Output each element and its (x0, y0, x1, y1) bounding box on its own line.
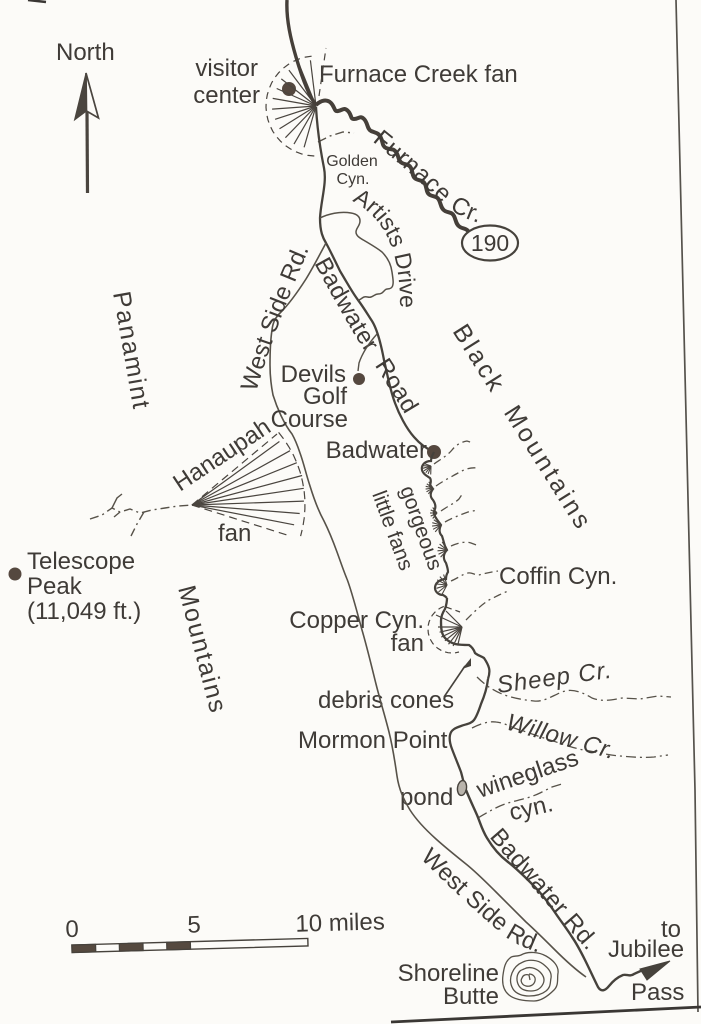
svg-text:visitor: visitor (195, 55, 258, 82)
svg-text:Furnace Creek fan: Furnace Creek fan (319, 61, 518, 88)
svg-text:10 miles: 10 miles (295, 908, 385, 937)
svg-text:Badwater: Badwater (326, 437, 427, 464)
svg-text:Mormon Point: Mormon Point (298, 727, 448, 754)
svg-text:Pass: Pass (631, 979, 684, 1006)
svg-text:Coffin Cyn.: Coffin Cyn. (499, 563, 617, 590)
svg-text:Telescope: Telescope (27, 548, 135, 575)
svg-text:190: 190 (471, 230, 509, 256)
svg-text:Course: Course (271, 406, 348, 433)
svg-text:Sheep Cr.: Sheep Cr. (495, 657, 614, 699)
svg-text:Butte: Butte (443, 983, 499, 1010)
svg-text:cyn.: cyn. (507, 790, 556, 826)
svg-text:Black Mountains: Black Mountains (447, 319, 598, 536)
svg-text:5: 5 (187, 911, 201, 938)
svg-text:fan: fan (218, 520, 251, 547)
svg-text:Mountains: Mountains (172, 582, 232, 716)
svg-text:fan: fan (391, 630, 424, 657)
svg-text:Peak: Peak (27, 573, 83, 600)
svg-text:North: North (56, 39, 115, 66)
svg-text:(11,049 ft.): (11,049 ft.) (27, 598, 141, 625)
svg-text:Jubilee: Jubilee (608, 936, 684, 963)
svg-text:Golden: Golden (326, 153, 378, 170)
svg-text:debris cones: debris cones (318, 687, 454, 714)
svg-text:center: center (193, 82, 260, 109)
svg-text:Hanaupah: Hanaupah (168, 413, 275, 497)
svg-text:Panamint: Panamint (107, 289, 155, 412)
svg-text:0: 0 (65, 916, 79, 943)
